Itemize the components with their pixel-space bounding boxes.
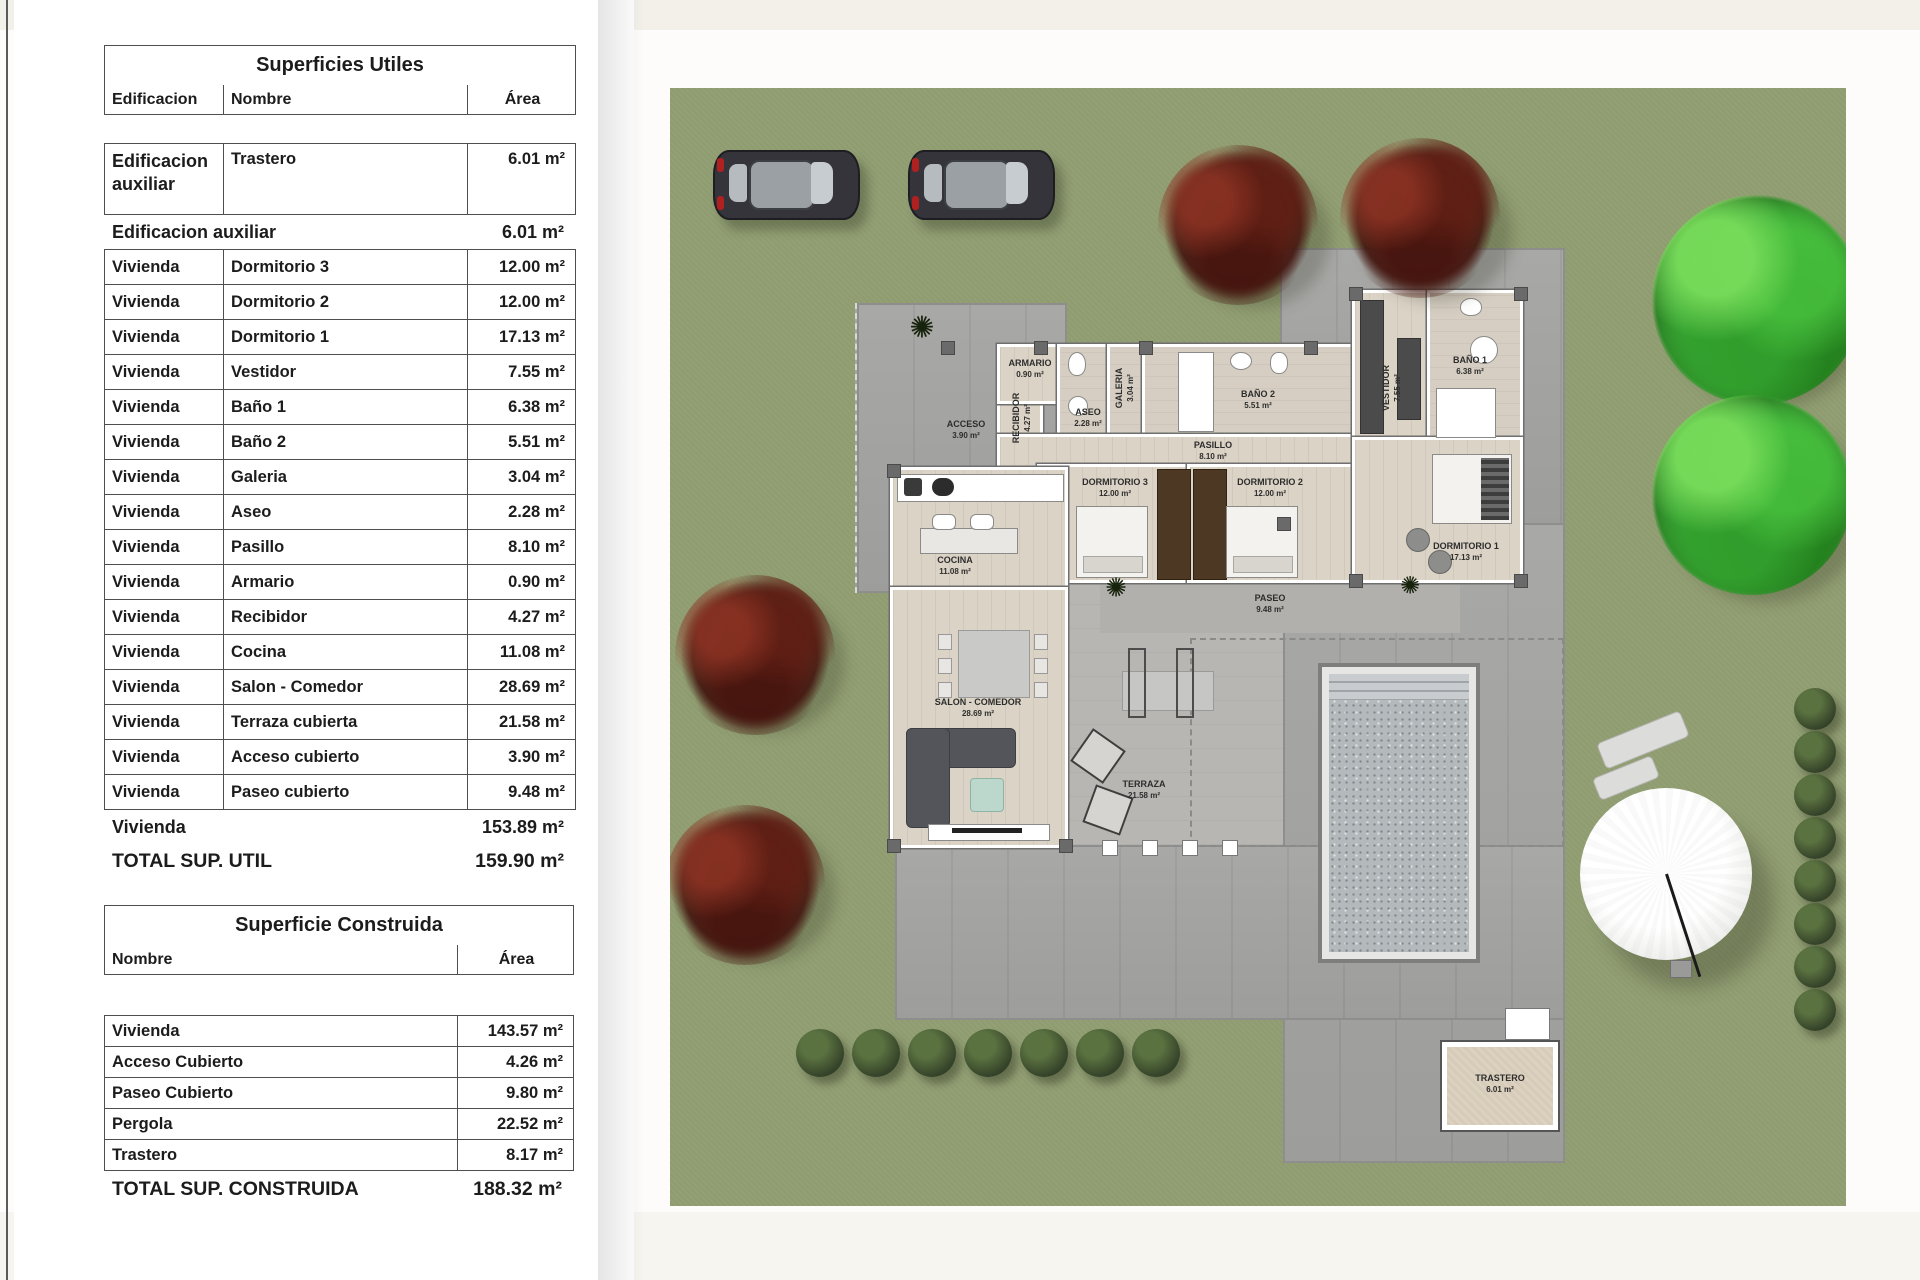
column (1222, 840, 1238, 856)
superficie-construida-table: Superficie Construida Nombre Área Vivien… (104, 905, 574, 1207)
pool-water (1329, 674, 1469, 952)
room-label: VESTIDOR7.55 m² (1381, 365, 1403, 411)
toilet (1460, 298, 1482, 316)
bush (852, 1029, 900, 1077)
room-name: ACCESO (947, 419, 986, 431)
cell-area: 3.90 m² (467, 740, 577, 774)
maroon-tree (1158, 145, 1318, 305)
cell-area: 8.17 m² (457, 1140, 575, 1170)
table-column-headers: Nombre Área (104, 945, 574, 975)
room-label: ACCESO3.90 m² (947, 419, 986, 441)
bed-dormitorio3 (1076, 506, 1148, 578)
subtotal-value: 153.89 m² (466, 817, 576, 838)
cell-area: 2.28 m² (467, 495, 577, 529)
cell-area: 12.00 m² (467, 285, 577, 319)
table-row: Paseo Cubierto9.80 m² (105, 1077, 573, 1108)
room-name: DORMITORIO 3 (1082, 477, 1148, 489)
cell-edificacion: Vivienda (105, 775, 223, 809)
stool (932, 514, 956, 530)
table-title: Superficies Utiles (104, 45, 576, 85)
table-row: ViviendaBaño 16.38 m² (105, 389, 575, 424)
total-construida-row: TOTAL SUP. CONSTRUIDA 188.32 m² (104, 1171, 574, 1207)
room-name: ASEO (1074, 407, 1102, 419)
table-row: ViviendaTerraza cubierta21.58 m² (105, 704, 575, 739)
kitchen-sink (904, 478, 922, 496)
plant-icon: ✺ (909, 311, 934, 346)
maroon-tree (1340, 138, 1500, 298)
room-label: COCINA11.08 m² (937, 555, 973, 577)
cell-nombre: Aseo (223, 495, 467, 529)
plan-sheet: Superficies Utiles Edificacion Nombre Ár… (0, 0, 1920, 1280)
room-area: 3.04 m² (1126, 368, 1136, 409)
table-row: ViviendaArmario0.90 m² (105, 564, 575, 599)
room-area: 12.00 m² (1237, 489, 1303, 499)
pillar (1514, 574, 1528, 588)
pillar (1349, 287, 1363, 301)
total-label: TOTAL SUP. CONSTRUIDA (104, 1178, 456, 1201)
table-title: Superficie Construida (104, 905, 574, 945)
pillar (941, 341, 955, 355)
room-label: DORMITORIO 212.00 m² (1237, 477, 1303, 499)
superficies-utiles-table: Superficies Utiles Edificacion Nombre Ár… (104, 45, 576, 878)
cell-area: 5.51 m² (467, 425, 577, 459)
armchair (1406, 528, 1430, 552)
room-name: DORMITORIO 1 (1433, 541, 1499, 553)
chair (938, 634, 952, 650)
pillar (1277, 517, 1291, 531)
table-row: Trastero8.17 m² (105, 1139, 573, 1170)
total-label: TOTAL SUP. UTIL (104, 850, 466, 873)
room-name: BAÑO 2 (1241, 389, 1275, 401)
toilet (1068, 352, 1086, 376)
table-row: ViviendaDormitorio 117.13 m² (105, 319, 575, 354)
column (1102, 840, 1118, 856)
cell-edificacion: Vivienda (105, 495, 223, 529)
pillar (887, 839, 901, 853)
table-row: ViviendaDormitorio 312.00 m² (105, 250, 575, 284)
cell-area: 21.58 m² (467, 705, 577, 739)
subtotal-label: Edificacion auxiliar (104, 222, 466, 243)
table-row: ViviendaAcceso cubierto3.90 m² (105, 739, 575, 774)
cell-edificacion: Vivienda (105, 460, 223, 494)
table-row: Vivienda143.57 m² (105, 1016, 573, 1046)
room-area: 12.00 m² (1082, 489, 1148, 499)
room-pasillo (1000, 437, 1360, 467)
cell-nombre: Trastero (105, 1140, 457, 1170)
room-label: RECIBIDOR4.27 m² (1011, 393, 1033, 444)
cell-area: 0.90 m² (467, 565, 577, 599)
subtotal-value: 6.01 m² (466, 222, 576, 243)
table-row-aux: Edificacion auxiliar Trastero 6.01 m² (105, 144, 575, 214)
sofa (906, 728, 950, 828)
cell-edificacion: Vivienda (105, 565, 223, 599)
pillar (1514, 287, 1528, 301)
bush (1794, 817, 1836, 859)
room-name: ARMARIO (1009, 358, 1052, 370)
vivienda-rows: ViviendaDormitorio 312.00 m²ViviendaDorm… (104, 249, 576, 810)
site-plan: ✺ ✺ ✺ ACCESO3.90 m²RECIBIDOR4.27 m²ARMAR… (670, 88, 1846, 1206)
page-fold-shadow (598, 0, 644, 1280)
pillar (1139, 341, 1153, 355)
room-area: 2.28 m² (1074, 419, 1102, 429)
room-name: VESTIDOR (1381, 365, 1393, 411)
col-area: Área (467, 85, 577, 114)
bush (1794, 989, 1836, 1031)
plant-icon: ✺ (1105, 573, 1127, 604)
cell-area: 28.69 m² (467, 670, 577, 704)
room-area: 6.38 m² (1453, 367, 1487, 377)
cell-edificacion: Vivienda (105, 320, 223, 354)
chair (1034, 658, 1048, 674)
bush (1794, 860, 1836, 902)
table-row: ViviendaGaleria3.04 m² (105, 459, 575, 494)
total-value: 159.90 m² (466, 850, 576, 873)
rug (970, 778, 1004, 812)
aux-subtotal-row: Edificacion auxiliar 6.01 m² (104, 215, 576, 249)
cell-edificacion: Vivienda (105, 390, 223, 424)
bed-dormitorio1 (1432, 454, 1512, 524)
wardrobe-closet (1193, 469, 1227, 580)
pillar (1304, 341, 1318, 355)
cell-nombre: Galeria (223, 460, 467, 494)
column (1142, 840, 1158, 856)
chair (938, 682, 952, 698)
dining-table (958, 630, 1030, 698)
room-label: ARMARIO0.90 m² (1009, 358, 1052, 380)
cell-nombre: Dormitorio 2 (223, 285, 467, 319)
green-tree (1652, 195, 1846, 405)
room-area: 4.27 m² (1023, 393, 1033, 444)
cell-area: 9.80 m² (457, 1078, 575, 1108)
maroon-tree (670, 805, 825, 965)
car (908, 150, 1055, 220)
cell-nombre: Dormitorio 3 (223, 250, 467, 284)
cell-edificacion: Vivienda (105, 530, 223, 564)
bush (1794, 774, 1836, 816)
bush (1794, 903, 1836, 945)
room-label: DORMITORIO 312.00 m² (1082, 477, 1148, 499)
col-nombre: Nombre (223, 85, 467, 114)
cell-nombre: Dormitorio 1 (223, 320, 467, 354)
cell-area: 8.10 m² (467, 530, 577, 564)
tv (952, 828, 1022, 833)
cell-area: 22.52 m² (457, 1109, 575, 1139)
col-edificacion: Edificacion (105, 85, 223, 114)
total-util-row: TOTAL SUP. UTIL 159.90 m² (104, 844, 576, 878)
cell-edificacion: Vivienda (105, 285, 223, 319)
shower (1178, 352, 1214, 432)
room-area: 8.10 m² (1194, 452, 1232, 462)
table-row: ViviendaAseo2.28 m² (105, 494, 575, 529)
toilet (1270, 352, 1288, 374)
table-column-headers: Edificacion Nombre Área (104, 85, 576, 115)
cell-edificacion: Vivienda (105, 355, 223, 389)
cell-edificacion: Vivienda (105, 250, 223, 284)
sink (1230, 352, 1252, 370)
table-row: Pergola22.52 m² (105, 1108, 573, 1139)
room-name: PASEO (1255, 593, 1286, 605)
table-row: ViviendaVestidor7.55 m² (105, 354, 575, 389)
table-row: ViviendaBaño 25.51 m² (105, 424, 575, 459)
kitchen-stove (932, 478, 954, 496)
bush (1794, 946, 1836, 988)
bush (796, 1029, 844, 1077)
room-name: DORMITORIO 2 (1237, 477, 1303, 489)
room-label: PASEO9.48 m² (1255, 593, 1286, 615)
cell-area: 6.01 m² (467, 144, 577, 214)
table-row: ViviendaPaseo cubierto9.48 m² (105, 774, 575, 809)
cell-nombre: Salon - Comedor (223, 670, 467, 704)
terrace-chair (1128, 648, 1146, 718)
cell-edificacion: Vivienda (105, 600, 223, 634)
room-area: 7.55 m² (1393, 365, 1403, 411)
cell-edificacion: Vivienda (105, 740, 223, 774)
cell-area: 11.08 m² (467, 635, 577, 669)
plant-icon: ✺ (1400, 572, 1420, 601)
cell-nombre: Acceso cubierto (223, 740, 467, 774)
room-area: 11.08 m² (937, 567, 973, 577)
bush (1076, 1029, 1124, 1077)
shower-tray (1436, 388, 1496, 438)
cell-area: 17.13 m² (467, 320, 577, 354)
table-row: ViviendaPasillo8.10 m² (105, 529, 575, 564)
bush (1020, 1029, 1068, 1077)
cell-area: 143.57 m² (457, 1016, 575, 1046)
subtotal-label: Vivienda (104, 817, 466, 838)
room-label: BAÑO 25.51 m² (1241, 389, 1275, 411)
cell-nombre: Acceso Cubierto (105, 1047, 457, 1077)
cell-nombre: Terraza cubierta (223, 705, 467, 739)
col-area: Área (457, 945, 575, 974)
room-label: SALON - COMEDOR28.69 m² (935, 697, 1022, 719)
cell-nombre: Baño 2 (223, 425, 467, 459)
room-label: GALERIA3.04 m² (1114, 368, 1136, 409)
terrace-chair (1176, 648, 1194, 718)
room-label: TERRAZA21.58 m² (1123, 779, 1166, 801)
room-name: GALERIA (1114, 368, 1126, 409)
wardrobe-closet (1157, 469, 1191, 580)
cell-area: 12.00 m² (467, 250, 577, 284)
room-label: ASEO2.28 m² (1074, 407, 1102, 429)
maroon-tree (675, 575, 835, 735)
room-name: BAÑO 1 (1453, 355, 1487, 367)
chair (1034, 682, 1048, 698)
green-tree (1652, 395, 1846, 595)
vivienda-subtotal-row: Vivienda 153.89 m² (104, 810, 576, 844)
cell-area: 4.27 m² (467, 600, 577, 634)
swimming-pool (1318, 663, 1480, 963)
room-area: 5.51 m² (1241, 401, 1275, 411)
stool (970, 514, 994, 530)
room-name: PASILLO (1194, 440, 1232, 452)
car (713, 150, 860, 220)
room-label: DORMITORIO 117.13 m² (1433, 541, 1499, 563)
cell-edificacion: Vivienda (105, 670, 223, 704)
cell-area: 7.55 m² (467, 355, 577, 389)
table-row: Acceso Cubierto4.26 m² (105, 1046, 573, 1077)
cell-nombre: Cocina (223, 635, 467, 669)
room-name: TERRAZA (1123, 779, 1166, 791)
table-row: ViviendaDormitorio 212.00 m² (105, 284, 575, 319)
pillar (1059, 839, 1073, 853)
table-row: ViviendaSalon - Comedor28.69 m² (105, 669, 575, 704)
cell-nombre: Pergola (105, 1109, 457, 1139)
bush (1794, 688, 1836, 730)
cell-area: 3.04 m² (467, 460, 577, 494)
cell-edificacion: Edificacion auxiliar (105, 144, 223, 214)
bush (964, 1029, 1012, 1077)
room-name: TRASTERO (1475, 1073, 1525, 1085)
page-edge-line (6, 0, 8, 1280)
cell-edificacion: Vivienda (105, 705, 223, 739)
room-area: 3.90 m² (947, 431, 986, 441)
table-row: ViviendaRecibidor4.27 m² (105, 599, 575, 634)
trastero-porch (1505, 1008, 1550, 1040)
pillar (1349, 574, 1363, 588)
cell-nombre: Vestidor (223, 355, 467, 389)
construida-rows: Vivienda143.57 m²Acceso Cubierto4.26 m²P… (104, 1015, 574, 1171)
room-area: 21.58 m² (1123, 791, 1166, 801)
cell-nombre: Baño 1 (223, 390, 467, 424)
cell-edificacion: Vivienda (105, 425, 223, 459)
room-label: BAÑO 16.38 m² (1453, 355, 1487, 377)
room-area: 9.48 m² (1255, 605, 1286, 615)
room-name: COCINA (937, 555, 973, 567)
room-area: 17.13 m² (1433, 553, 1499, 563)
room-name: SALON - COMEDOR (935, 697, 1022, 709)
column (1182, 840, 1198, 856)
cell-nombre: Pasillo (223, 530, 467, 564)
bush (908, 1029, 956, 1077)
cell-area: 4.26 m² (457, 1047, 575, 1077)
cell-nombre: Paseo cubierto (223, 775, 467, 809)
room-area: 28.69 m² (935, 709, 1022, 719)
cell-area: 9.48 m² (467, 775, 577, 809)
kitchen-island (920, 528, 1018, 554)
kitchen-counter (897, 474, 1064, 502)
col-nombre: Nombre (105, 945, 457, 974)
pillar (887, 464, 901, 478)
total-value: 188.32 m² (456, 1178, 574, 1201)
cell-nombre: Paseo Cubierto (105, 1078, 457, 1108)
room-area: 6.01 m² (1475, 1085, 1525, 1095)
cell-nombre: Armario (223, 565, 467, 599)
room-label: PASILLO8.10 m² (1194, 440, 1232, 462)
bush (1794, 731, 1836, 773)
cell-edificacion: Vivienda (105, 635, 223, 669)
table-row: ViviendaCocina11.08 m² (105, 634, 575, 669)
cell-nombre: Vivienda (105, 1016, 457, 1046)
bush (1132, 1029, 1180, 1077)
cell-area: 6.38 m² (467, 390, 577, 424)
room-name: RECIBIDOR (1011, 393, 1023, 444)
cell-nombre: Recibidor (223, 600, 467, 634)
parasol-base (1670, 960, 1692, 978)
chair (1034, 634, 1048, 650)
chair (938, 658, 952, 674)
cell-nombre: Trastero (223, 144, 467, 214)
room-label: TRASTERO6.01 m² (1475, 1073, 1525, 1095)
room-area: 0.90 m² (1009, 370, 1052, 380)
pillar (1034, 341, 1048, 355)
